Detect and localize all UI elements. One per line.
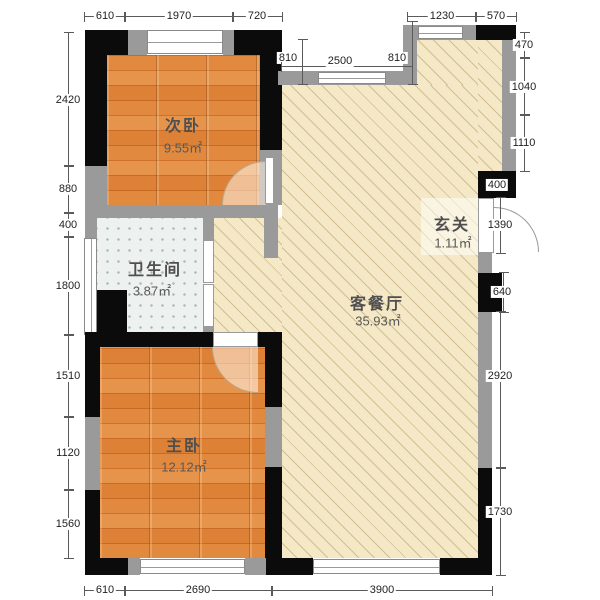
dim-label: 1230 bbox=[428, 10, 456, 22]
room-name-master-bedroom: 主卧 bbox=[166, 432, 202, 456]
wall-black-bottom-middle bbox=[266, 558, 313, 575]
window-master-bedroom-bottom bbox=[140, 559, 245, 574]
wall-black-bathroom-column bbox=[97, 290, 127, 332]
room-area-bathroom: 3.87㎡ bbox=[133, 281, 171, 300]
dim-label: 1120 bbox=[54, 447, 82, 459]
wall-black-right-bottom bbox=[478, 468, 492, 575]
wall-gray-stub bbox=[264, 218, 278, 258]
sliding-door-bathroom-lower bbox=[203, 284, 214, 327]
room-name-bathroom: 卫生间 bbox=[128, 256, 182, 280]
dim-label: 570 bbox=[485, 10, 507, 22]
dim-label: 400 bbox=[486, 179, 508, 191]
wall-gray bbox=[128, 558, 140, 575]
wall-gray bbox=[223, 30, 234, 55]
wall-gray bbox=[128, 30, 147, 55]
dim-label: 1970 bbox=[165, 10, 193, 22]
window-living-top bbox=[318, 72, 386, 84]
dim-label: 610 bbox=[94, 10, 116, 22]
wall-gray-bathroom-left bbox=[85, 213, 97, 238]
window-secondary-bedroom-top bbox=[147, 30, 223, 54]
dim-label: 2690 bbox=[184, 584, 212, 596]
wall-gray-secondary-bottom bbox=[85, 205, 278, 218]
door-opening-master-bedroom bbox=[213, 332, 258, 347]
dim-label: 720 bbox=[246, 10, 268, 22]
dim-label: 810 bbox=[386, 52, 408, 64]
wall-black-master-top-left bbox=[85, 332, 213, 347]
dim-label: 470 bbox=[513, 39, 535, 51]
wall-black-master-left-upper bbox=[85, 332, 100, 417]
dim-label: 1510 bbox=[54, 370, 82, 382]
wall-gray-above-bathroom-door bbox=[203, 218, 214, 240]
wall-black-master-left-lower bbox=[85, 490, 100, 560]
wall-gray-master-right bbox=[265, 407, 282, 467]
wall-gray-below-entry bbox=[478, 253, 492, 273]
room-name-secondary-bedroom: 次卧 bbox=[165, 112, 201, 136]
door-leaf-secondary-bedroom bbox=[265, 157, 274, 204]
wall-black-left bbox=[85, 30, 107, 166]
wall-gray-right-upper bbox=[502, 40, 516, 171]
dim-label: 1040 bbox=[510, 81, 538, 93]
wall-black-master-right-lower bbox=[265, 467, 282, 560]
room-area-foyer: 1.11㎡ bbox=[434, 233, 471, 252]
dim-label: 2920 bbox=[486, 370, 514, 382]
floor-plan: 次卧 9.55㎡ 卫生间 3.87㎡ 主卧 12.12㎡ 客餐厅 35.93㎡ … bbox=[0, 0, 600, 600]
dim-label: 640 bbox=[491, 286, 513, 298]
room-area-secondary-bedroom: 9.55㎡ bbox=[164, 138, 202, 157]
window-bathroom-left bbox=[84, 238, 97, 335]
dim-label: 1110 bbox=[511, 137, 538, 149]
dim-label: 1730 bbox=[486, 506, 514, 518]
wall-gray-master-left bbox=[85, 417, 100, 490]
room-area-living-dining: 35.93㎡ bbox=[355, 311, 401, 330]
dim-label: 1800 bbox=[54, 280, 82, 292]
room-name-foyer: 玄关 bbox=[434, 211, 470, 235]
dim-line bbox=[412, 22, 413, 84]
dim-label: 2420 bbox=[54, 94, 82, 106]
wall-black-secondary-right bbox=[260, 30, 282, 150]
wall-black-bottom-corner-left bbox=[85, 558, 128, 575]
wall-gray-right-lower bbox=[478, 312, 492, 468]
dim-label: 1390 bbox=[486, 219, 514, 231]
floor-living-dining-top-right bbox=[417, 40, 478, 85]
dim-label: 1560 bbox=[54, 518, 82, 530]
wall-gray bbox=[245, 558, 266, 575]
dim-line bbox=[500, 312, 501, 468]
dim-label: 2500 bbox=[326, 55, 354, 67]
floor-living-dining-right-strip bbox=[478, 40, 502, 171]
window-living-bottom bbox=[313, 559, 440, 574]
dim-label: 880 bbox=[57, 183, 79, 195]
dim-label: 3900 bbox=[368, 584, 396, 596]
wall-black-top-right-corner bbox=[476, 25, 516, 40]
dim-label: 610 bbox=[94, 584, 116, 596]
dim-line bbox=[500, 468, 501, 575]
window-top-right bbox=[418, 26, 463, 39]
room-area-master-bedroom: 12.12㎡ bbox=[161, 457, 207, 476]
dim-line bbox=[302, 40, 303, 84]
sliding-door-bathroom-upper bbox=[203, 240, 214, 283]
dim-label: 400 bbox=[57, 219, 79, 231]
wall-black-master-right-upper bbox=[265, 332, 282, 407]
